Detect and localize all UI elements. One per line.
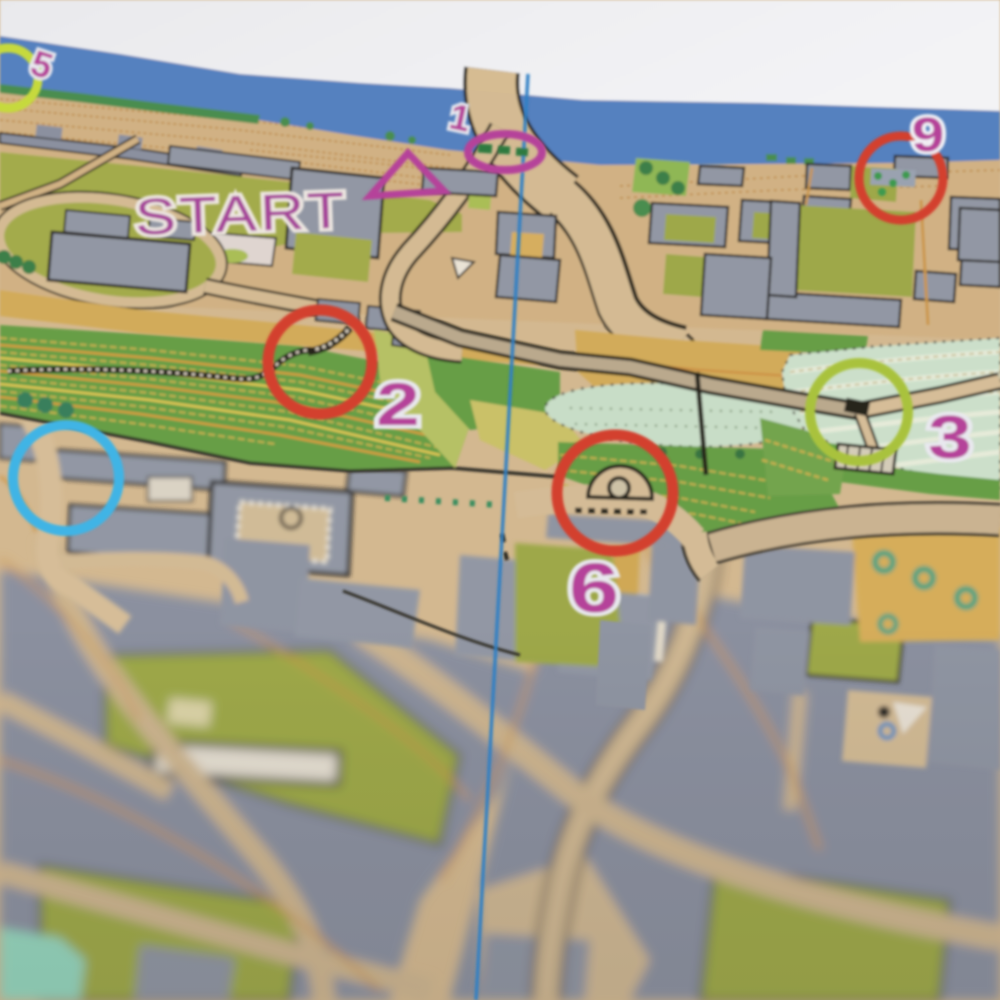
svg-text:3: 3: [928, 404, 971, 471]
svg-text:START: START: [134, 181, 349, 245]
svg-text:6: 6: [569, 549, 619, 627]
svg-text:2: 2: [376, 371, 419, 438]
svg-text:9: 9: [912, 109, 945, 162]
